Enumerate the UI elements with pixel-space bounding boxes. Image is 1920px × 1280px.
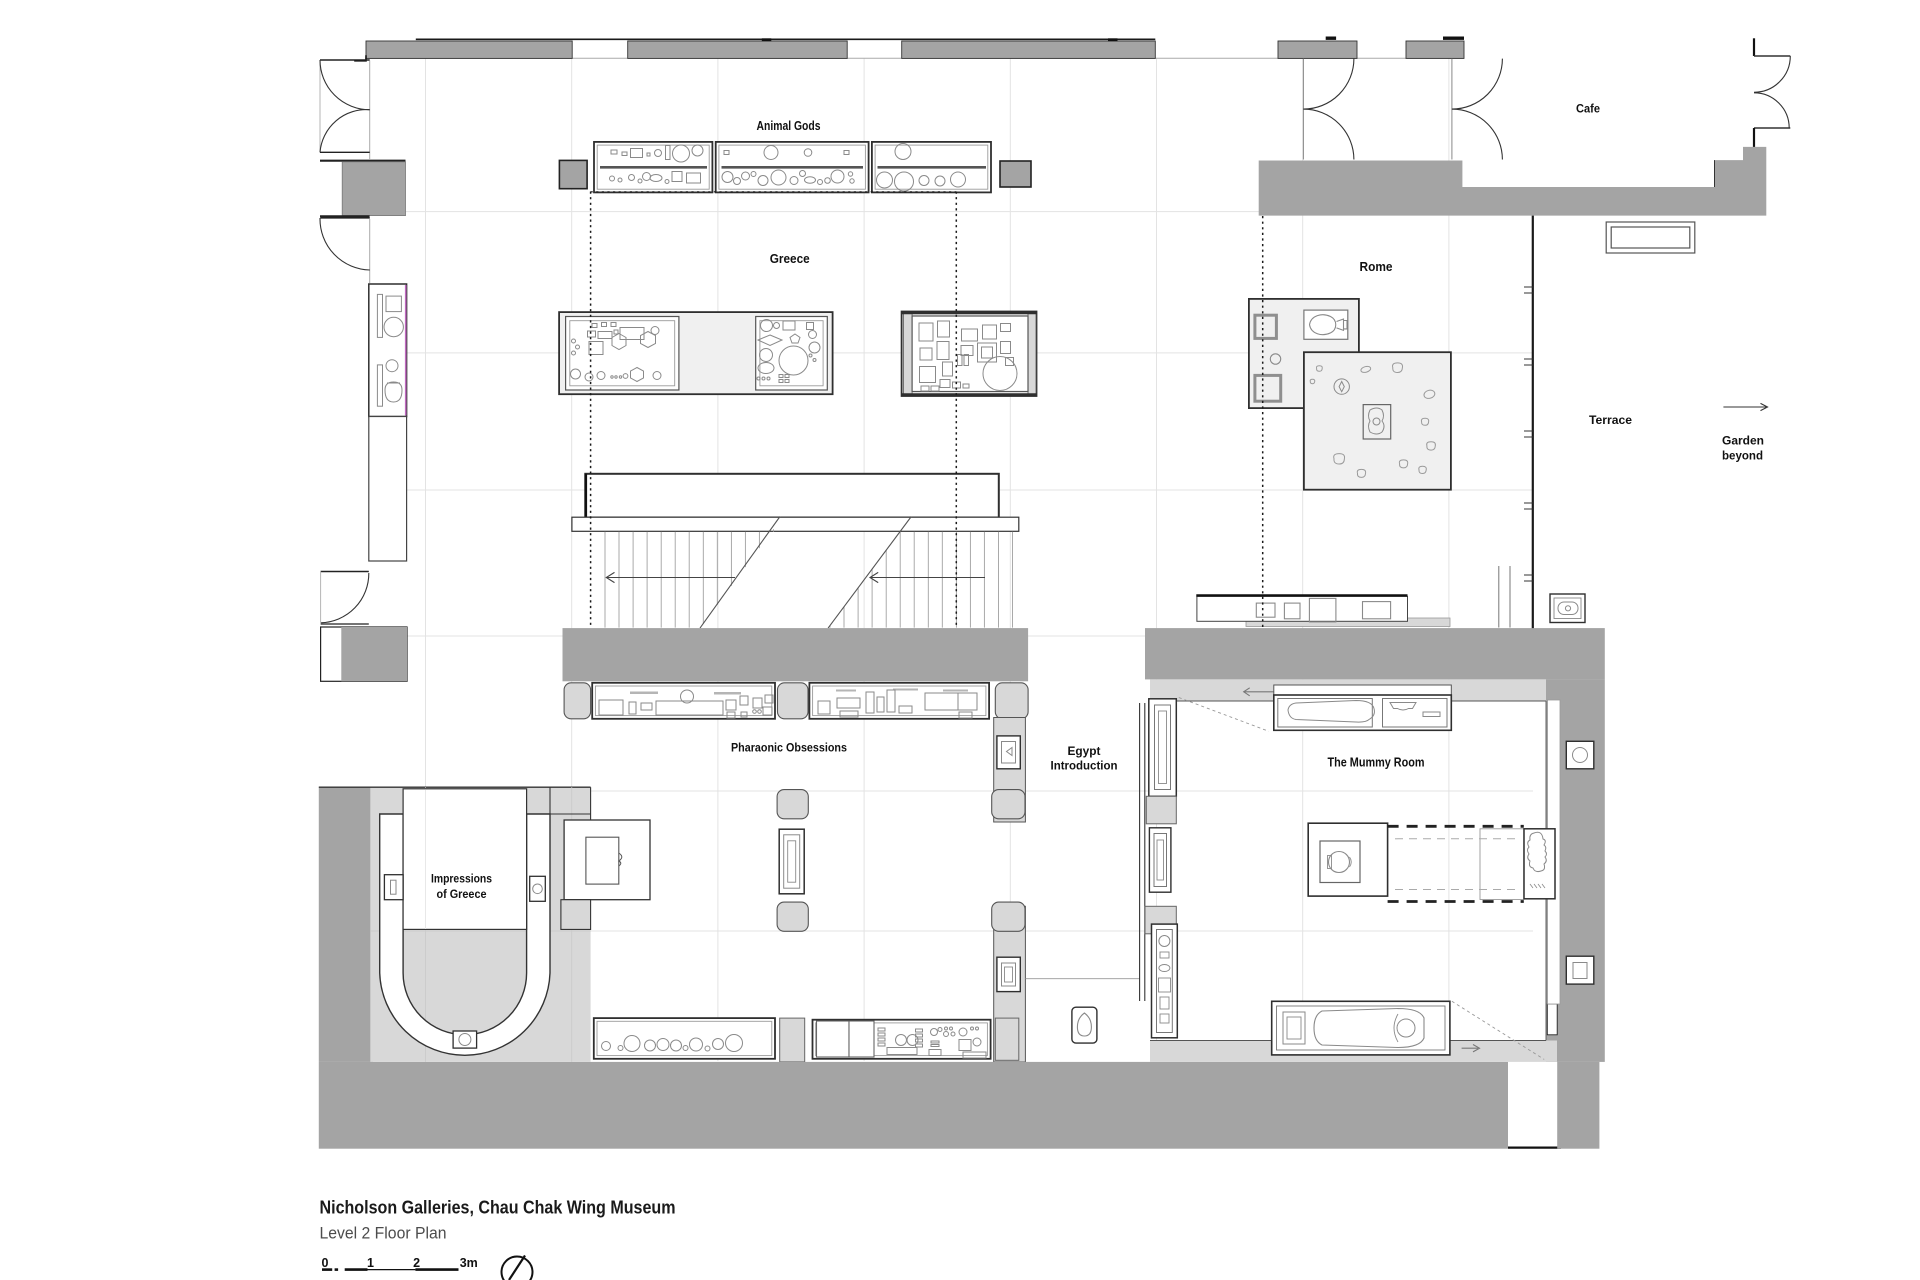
svg-text:beyond: beyond xyxy=(1722,451,1763,463)
svg-text:Egypt: Egypt xyxy=(1068,744,1101,758)
svg-text:2: 2 xyxy=(413,1256,420,1270)
svg-text:Pharaonic Obsessions: Pharaonic Obsessions xyxy=(731,741,847,755)
svg-text:1: 1 xyxy=(367,1256,374,1270)
svg-text:Garden: Garden xyxy=(1722,436,1764,448)
svg-text:Animal Gods: Animal Gods xyxy=(757,119,821,133)
svg-text:Cafe: Cafe xyxy=(1576,102,1600,116)
svg-text:Terrace: Terrace xyxy=(1589,413,1632,427)
svg-text:Level 2 Floor Plan: Level 2 Floor Plan xyxy=(320,1225,447,1243)
svg-text:Nicholson Galleries, Chau Chak: Nicholson Galleries, Chau Chak Wing Muse… xyxy=(320,1198,676,1218)
svg-text:Rome: Rome xyxy=(1360,260,1393,274)
svg-text:Greece: Greece xyxy=(770,252,810,266)
svg-text:Impressions: Impressions xyxy=(431,872,492,886)
svg-text:of Greece: of Greece xyxy=(437,887,487,901)
svg-text:The Mummy Room: The Mummy Room xyxy=(1328,756,1425,770)
svg-text:0: 0 xyxy=(322,1256,329,1270)
svg-text:Introduction: Introduction xyxy=(1051,759,1118,773)
svg-text:3m: 3m xyxy=(460,1256,478,1270)
